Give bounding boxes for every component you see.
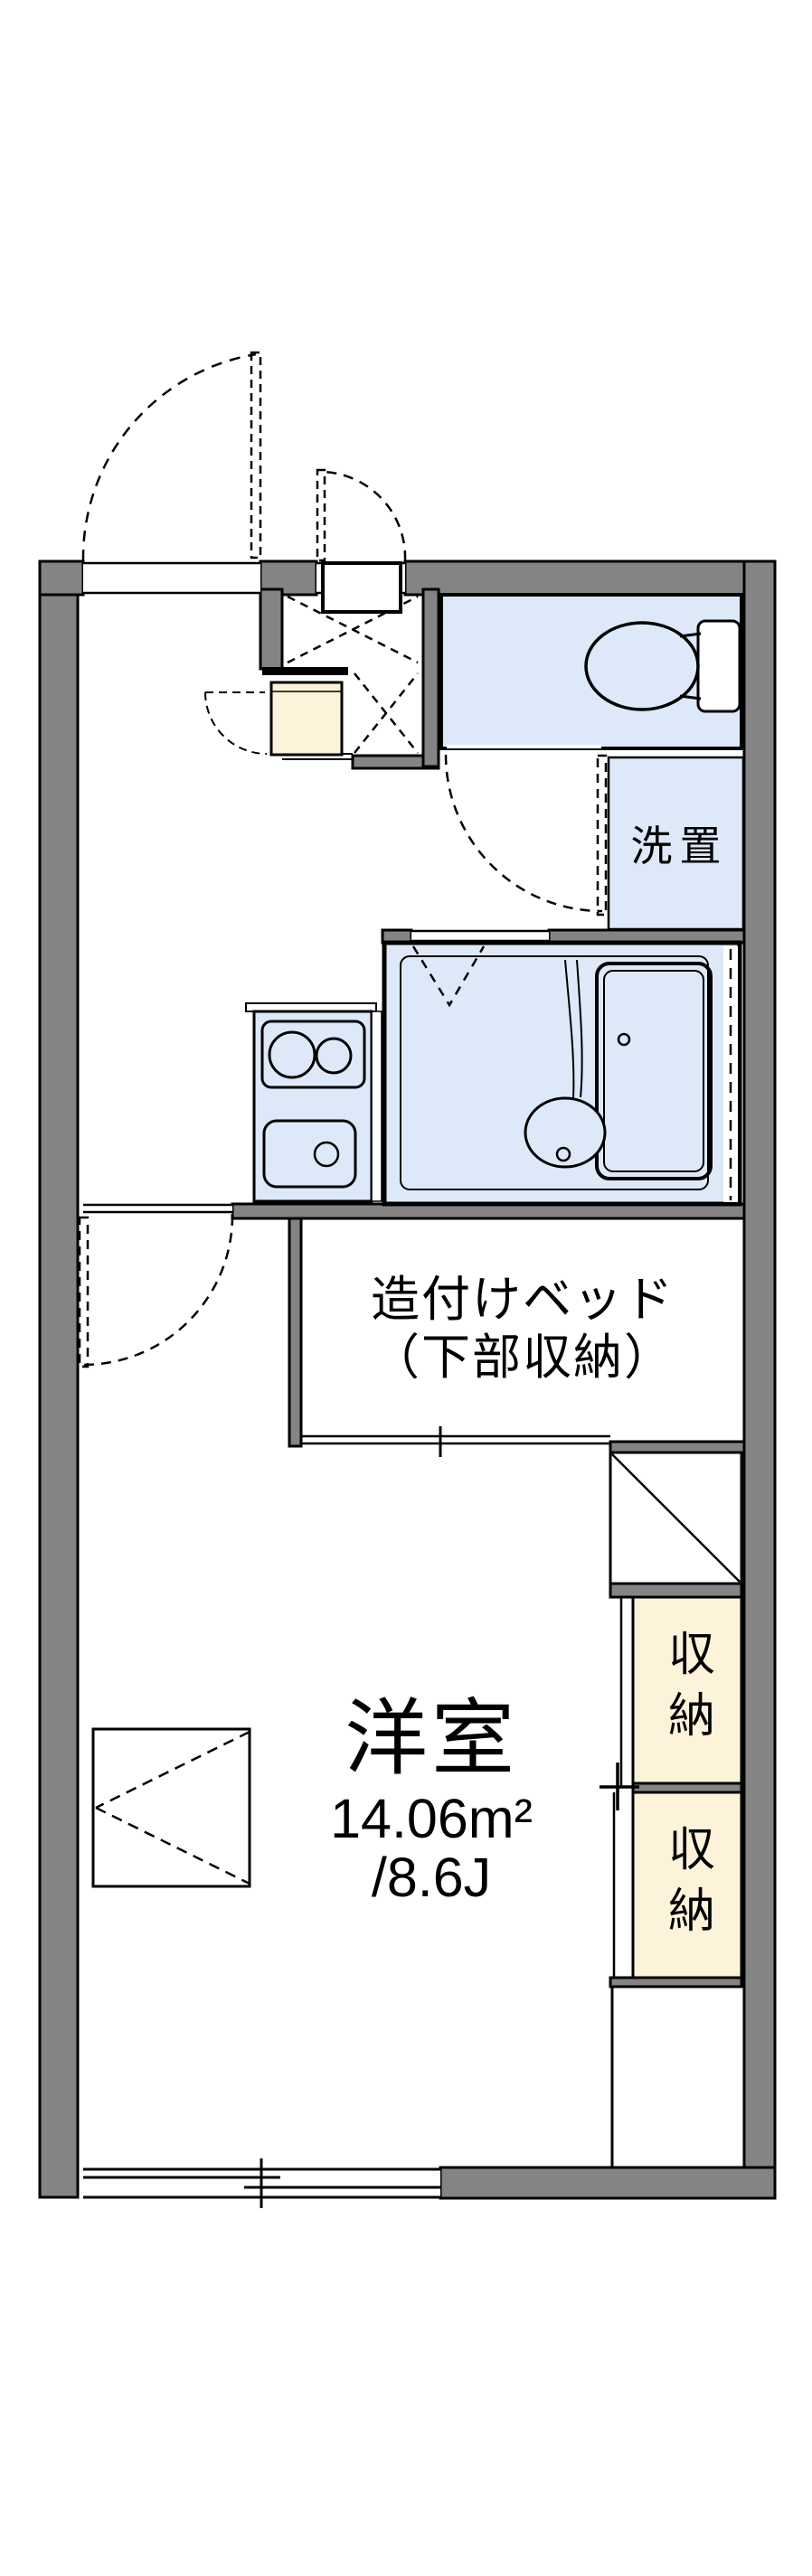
wall-right — [744, 561, 775, 2197]
wide-exterior-door — [83, 353, 260, 560]
wall-stub-genkan — [262, 667, 348, 675]
wall-bed-left — [289, 1218, 301, 1446]
toilet-tank — [698, 621, 740, 711]
washer-space-label: 洗置 — [609, 757, 743, 929]
western-room-area-m2: 14.06m² — [330, 1791, 533, 1847]
wall-top-corner-left — [40, 561, 83, 595]
wall-bottom — [440, 2167, 775, 2198]
bath-basin — [525, 1098, 605, 1167]
entrance-door-swing — [317, 470, 405, 560]
bed-label-line1: 造付けベッド — [371, 1272, 675, 1330]
kitchen-sink — [264, 1121, 355, 1187]
toilet-room — [441, 595, 741, 752]
wall-under-diagonal-box — [610, 1584, 741, 1597]
opening-bed-front — [301, 1426, 610, 1457]
western-room-name: 洋室 — [345, 1697, 518, 1781]
closet-2-label: 収納 — [633, 1792, 741, 1978]
closet-1-label: 収納 — [633, 1597, 741, 1783]
wall-left — [40, 561, 78, 2197]
upper-cabinet-box — [610, 1453, 741, 1584]
sink-drain — [315, 1142, 338, 1166]
opening-wide-door — [83, 562, 260, 593]
stove-burner-large — [269, 1032, 315, 1077]
stove-burner-small — [316, 1039, 351, 1073]
wall-toilet-left — [423, 589, 439, 766]
bathroom — [384, 943, 740, 1204]
kitchen-counter — [246, 1003, 382, 1201]
floorplan-canvas: 洗置 造付けベッド （下部収納） 洋室 14.06m² /8.6J 収納 収納 — [0, 0, 812, 2576]
sliding-window — [83, 2158, 440, 2208]
shoe-box-door — [205, 692, 267, 754]
entrance-door-panel — [323, 563, 401, 612]
toilet-door — [446, 755, 606, 915]
shoe-box — [271, 682, 342, 755]
bed-label-line2: （下部収納） — [371, 1330, 675, 1387]
wall-top-right — [405, 561, 744, 595]
western-room-door — [80, 1216, 232, 1367]
wall-genkan-strip — [260, 589, 282, 669]
built-in-bed-label: 造付けベッド （下部収納） — [301, 1255, 744, 1404]
western-room-area-jo: /8.6J — [372, 1850, 491, 1905]
